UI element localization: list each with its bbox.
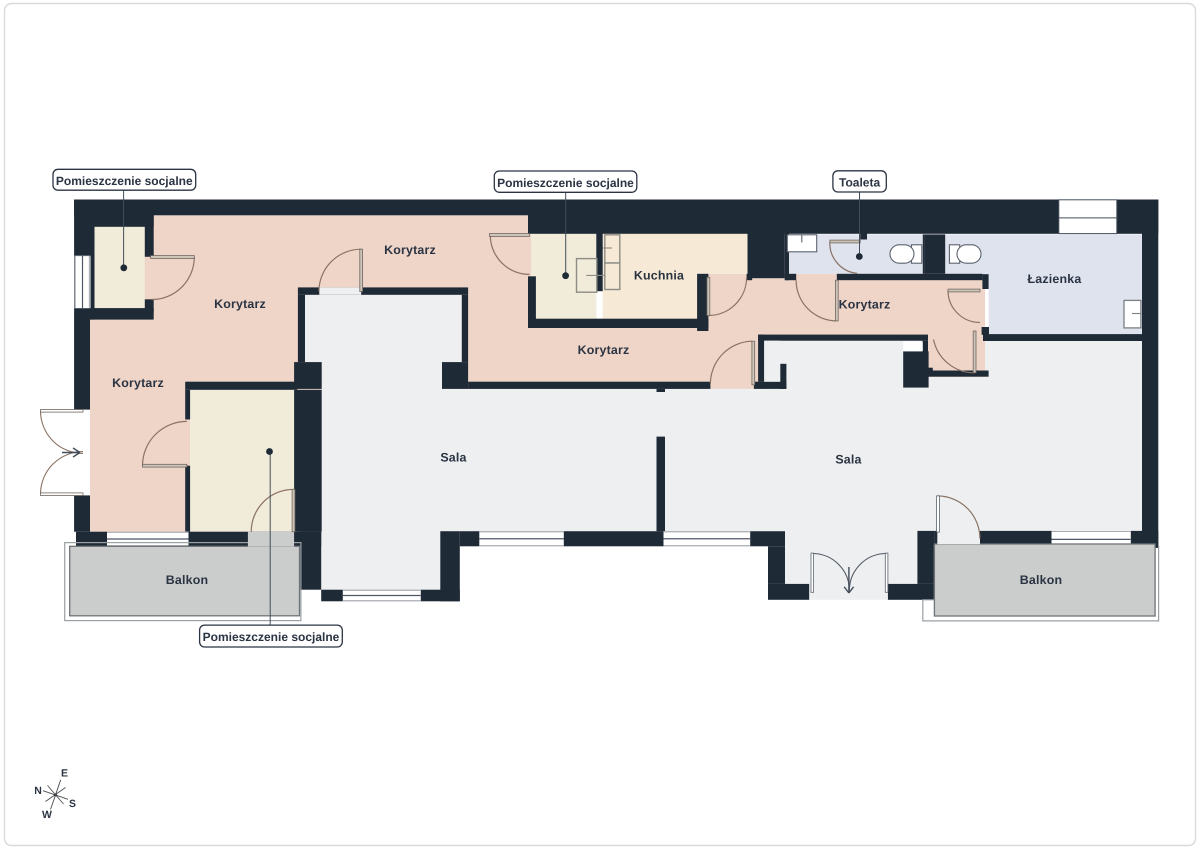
svg-text:Korytarz: Korytarz (578, 343, 630, 357)
svg-text:Sala: Sala (835, 452, 861, 466)
svg-text:Korytarz: Korytarz (112, 376, 164, 390)
svg-text:Łazienka: Łazienka (1028, 272, 1082, 286)
svg-text:Korytarz: Korytarz (839, 297, 891, 311)
svg-text:Toaleta: Toaleta (839, 176, 880, 190)
svg-text:N: N (34, 785, 42, 797)
svg-text:W: W (42, 809, 52, 821)
svg-text:Kuchnia: Kuchnia (634, 269, 684, 283)
svg-text:Pomieszczenie socjalne: Pomieszczenie socjalne (497, 176, 634, 190)
svg-text:Pomieszczenie socjalne: Pomieszczenie socjalne (203, 630, 340, 644)
svg-text:Pomieszczenie socjalne: Pomieszczenie socjalne (56, 174, 193, 188)
svg-text:Korytarz: Korytarz (214, 297, 266, 311)
svg-text:Korytarz: Korytarz (384, 243, 436, 257)
svg-text:Sala: Sala (440, 450, 466, 464)
svg-text:E: E (61, 768, 68, 780)
svg-text:Balkon: Balkon (166, 573, 209, 587)
svg-text:S: S (69, 798, 76, 810)
svg-text:Balkon: Balkon (1020, 573, 1063, 587)
